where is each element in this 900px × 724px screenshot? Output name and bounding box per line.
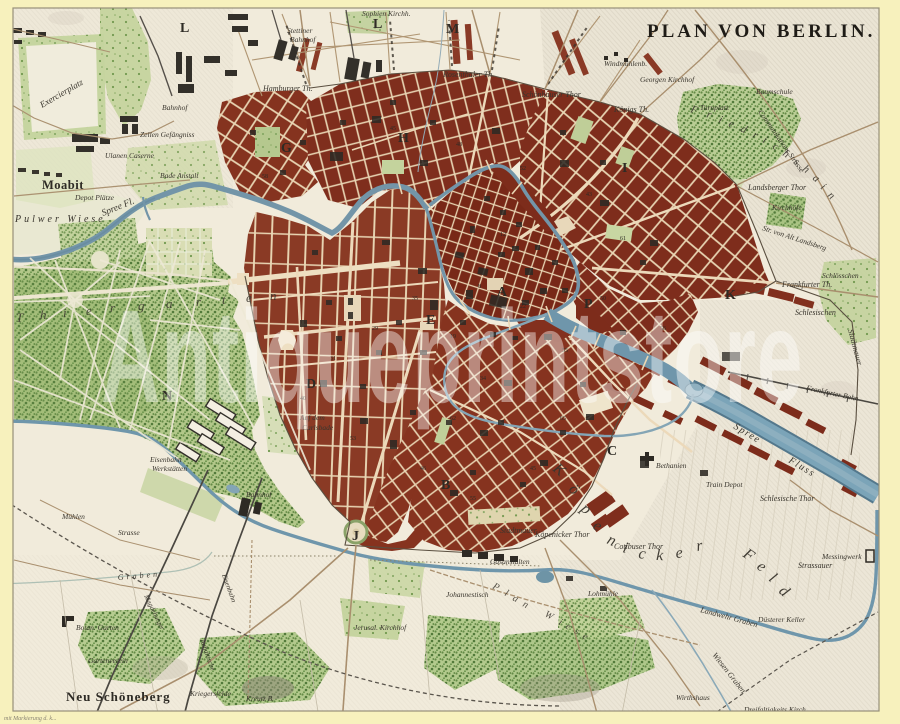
svg-text:L: L (180, 21, 189, 36)
svg-text:e: e (86, 303, 92, 318)
svg-text:46: 46 (420, 466, 426, 472)
svg-text:45: 45 (530, 466, 536, 472)
svg-text:Strassauer: Strassauer (798, 561, 833, 570)
svg-text:Jerusal. Kirchhof: Jerusal. Kirchhof (354, 623, 407, 632)
svg-text:Landsberger Thor: Landsberger Thor (747, 183, 807, 192)
svg-text:43: 43 (586, 192, 592, 198)
svg-text:h: h (40, 307, 47, 322)
svg-text:Train Depot: Train Depot (706, 480, 743, 489)
svg-text:T: T (16, 310, 24, 325)
svg-text:Messingwerk: Messingwerk (821, 552, 862, 561)
svg-text:Düsterer Keller: Düsterer Keller (757, 615, 805, 624)
svg-text:Turnplatz: Turnplatz (700, 103, 729, 112)
svg-text:55: 55 (470, 496, 476, 502)
svg-text:Stettiner: Stettiner (287, 26, 312, 35)
svg-text:mit Markierung d. k...: mit Markierung d. k... (4, 716, 57, 722)
svg-text:Hamburger Th.: Hamburger Th. (262, 84, 312, 93)
svg-text:Stadtmauer: Stadtmauer (500, 526, 538, 535)
svg-text:Wirthshaus: Wirthshaus (676, 693, 710, 702)
svg-text:e: e (675, 544, 684, 562)
svg-text:Sophien Kirchh.: Sophien Kirchh. (362, 9, 411, 18)
svg-text:Pulwer Wiese: Pulwer Wiese (14, 214, 106, 225)
svg-text:L: L (373, 17, 382, 32)
svg-text:Depot Plätze: Depot Plätze (74, 193, 115, 202)
svg-text:C: C (607, 444, 617, 459)
svg-text:52: 52 (520, 166, 526, 172)
svg-text:Köpenicker Thor: Köpenicker Thor (534, 530, 590, 539)
svg-text:Botan. Garten: Botan. Garten (76, 623, 119, 632)
svg-text:Kriegersfelde: Kriegersfelde (189, 689, 231, 698)
svg-text:45: 45 (390, 126, 396, 132)
svg-text:G: G (281, 141, 292, 156)
svg-text:Bahnhof: Bahnhof (290, 35, 316, 44)
svg-text:Baumschule: Baumschule (756, 87, 793, 96)
svg-text:61: 61 (620, 236, 626, 242)
svg-text:Königs Th.: Königs Th. (613, 105, 649, 114)
svg-text:I: I (622, 161, 627, 176)
svg-text:Schlösschen: Schlösschen (822, 271, 859, 280)
svg-text:Mühlen: Mühlen (61, 512, 85, 521)
svg-text:Rosenthaler Th.: Rosenthaler Th. (442, 70, 494, 79)
svg-text:J: J (352, 529, 359, 544)
svg-text:Werkstätten: Werkstätten (152, 464, 187, 473)
svg-text:Zellen Gefängniss: Zellen Gefängniss (140, 130, 194, 139)
svg-text:Bethanien: Bethanien (656, 461, 687, 470)
svg-text:Strasse: Strasse (118, 528, 140, 537)
svg-text:Windmühlenb.: Windmühlenb. (604, 59, 647, 68)
svg-text:Gartenverein: Gartenverein (88, 656, 128, 665)
svg-text:H: H (398, 131, 409, 146)
svg-text:Gasanstalten: Gasanstalten (490, 557, 530, 566)
svg-text:Schönhauser Thor: Schönhauser Thor (522, 90, 582, 99)
svg-text:Schlesische Thor: Schlesische Thor (760, 494, 815, 503)
svg-text:Johannestisch: Johannestisch (446, 590, 489, 599)
svg-text:PLAN VON BERLIN.: PLAN VON BERLIN. (647, 21, 875, 42)
svg-text:Kirchhöfe: Kirchhöfe (771, 203, 802, 212)
svg-text:Bade Anstalt: Bade Anstalt (160, 171, 199, 180)
svg-text:12: 12 (500, 232, 506, 238)
svg-text:M: M (446, 22, 459, 37)
svg-text:Bahnhof: Bahnhof (246, 490, 272, 499)
svg-text:Georgen Kirchhof: Georgen Kirchhof (640, 75, 695, 84)
svg-text:B: B (441, 478, 450, 493)
svg-text:Kreutz B.: Kreutz B. (245, 694, 274, 703)
svg-text:Eisenbahn: Eisenbahn (149, 455, 182, 464)
svg-text:Antiqueprintstore: Antiqueprintstore (101, 284, 803, 431)
svg-text:53: 53 (350, 436, 356, 442)
svg-text:Moabit: Moabit (42, 178, 84, 192)
svg-text:Cottbuser Thor: Cottbuser Thor (614, 542, 664, 551)
svg-text:Neu Schöneberg: Neu Schöneberg (66, 689, 171, 704)
svg-text:Lohmühle: Lohmühle (587, 589, 619, 598)
svg-text:58: 58 (262, 174, 268, 180)
svg-text:i: i (63, 305, 67, 320)
svg-text:Ulanen Caserne: Ulanen Caserne (105, 151, 155, 160)
svg-text:48: 48 (456, 142, 462, 148)
svg-text:Bahnhof: Bahnhof (162, 103, 188, 112)
